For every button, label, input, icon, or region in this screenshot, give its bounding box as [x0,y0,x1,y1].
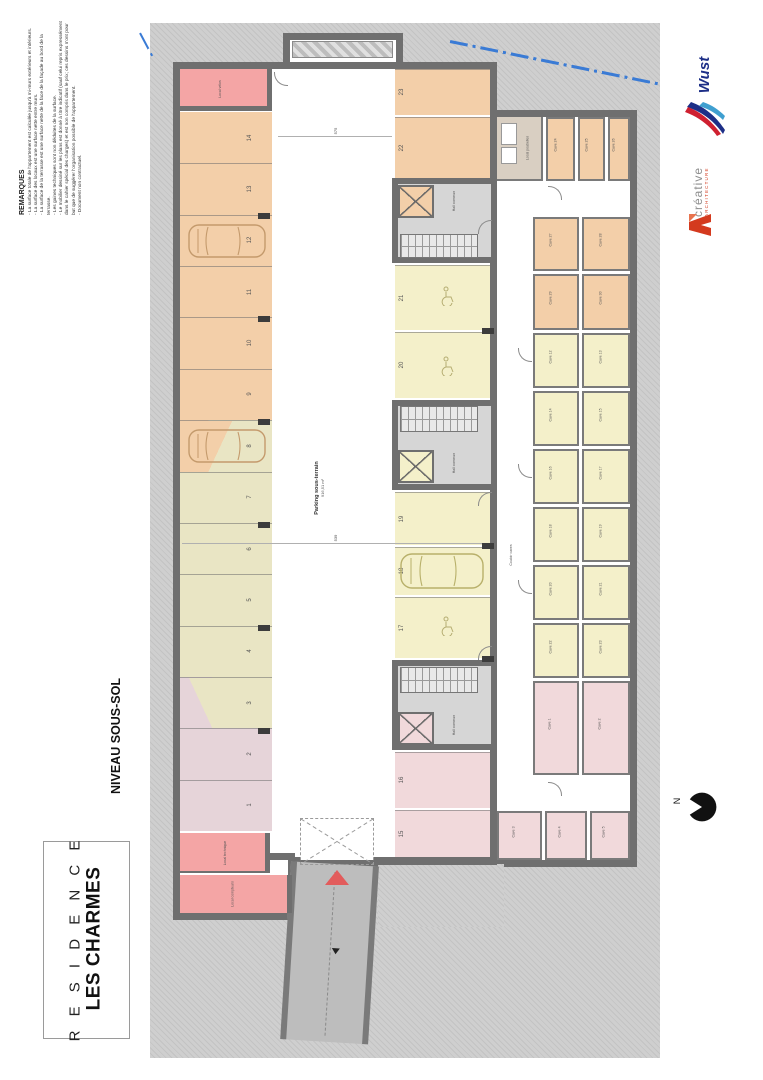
parking-space-number: 5 [244,594,256,606]
north-label: N [671,795,683,807]
ramp-entry-arrow-icon [325,870,349,885]
wheelchair-icon [437,286,455,306]
wheelchair-icon [437,356,455,376]
cave-room [533,217,579,271]
stall-tick [258,728,270,734]
parking-space [180,472,272,523]
cave-room [578,117,605,181]
crossed-zone-icon [301,819,373,864]
remarks-block: REMARQUES - La surface totale de l'appar… [19,20,114,215]
creative-architecture-logo-text: créative ARCHITECTURE [692,137,714,217]
residence-label: R E S I D E N C E [67,836,84,1042]
parking-space [395,752,490,808]
cave-room [582,507,630,562]
remarks-line: - Document non contractuel. [78,20,84,215]
remarks-title: REMARQUES [19,20,26,215]
parking-space [395,69,490,115]
car-icon [186,426,268,466]
cave-label: Cave 30 [599,291,603,304]
parking-space [180,780,272,831]
parking-space-number: 9 [244,388,256,400]
cave-room [533,507,579,562]
parking-space-number: 22 [396,142,408,154]
parking-space [180,369,272,420]
wust-logo-icon [683,102,725,136]
driveway-ramp [280,861,379,1044]
cave-label: Cave 14 [549,408,553,421]
elevator-shaft-icon [398,185,434,218]
parking-space-number: 3 [244,697,256,709]
car-icon [186,221,268,261]
stall-tick [258,625,270,631]
parking-space-number: 6 [244,543,256,555]
cave-room [582,565,630,620]
hall-label: Hall commun [449,179,459,223]
cave-label: Cave 21 [599,582,603,595]
remarks-line: - Le mobilier dessiné sur les plans est … [59,20,78,215]
parking-space [180,626,272,677]
elevator-shaft-icon [398,450,434,483]
cave-room [533,565,579,620]
stall-tick [258,522,270,528]
cave-label: Cave 27 [549,233,553,246]
parking-space-number: 2 [244,748,256,760]
parking-space-number: 23 [396,86,408,98]
cave-room [582,449,630,504]
elevator-shaft-icon [398,712,434,745]
remarks-line: - La surface de la terrasse est une surf… [40,20,52,215]
architecture-text: ARCHITECTURE [704,137,710,217]
cave-label: Cave 26 [612,138,616,151]
ramp-direction-arrow-icon [332,948,340,954]
corridor-label: Couloir caves [506,532,516,578]
cave-room [582,391,630,446]
parking-space-number: 20 [396,359,408,371]
cave-label: Cave 28 [599,233,603,246]
cave-label: Cave 18 [549,524,553,537]
parking-space-number: 11 [244,286,256,298]
parking-space-number: 19 [396,513,408,525]
cave-room [582,333,630,388]
parking-space-number: 17 [396,622,408,634]
room-label: Local vélos [213,69,227,109]
parking-space-number: 16 [396,774,408,786]
parking-space [180,317,272,368]
room-label: Local compteurs [226,867,240,922]
parking-space [180,677,272,728]
parking-space [180,112,272,163]
parking-space [180,574,272,625]
hall-label: Hall commun [449,441,459,485]
cave-room [533,623,579,678]
room-label: Local poubelles [522,121,534,176]
cave-label: Cave 20 [549,582,553,595]
plan-sheet: REMARQUES - La surface totale de l'appar… [0,0,763,1080]
cave-label: Cave 23 [599,640,603,653]
stall-tick [482,543,494,549]
cave-label: Cave 15 [599,408,603,421]
creative-text: créative [692,137,704,217]
cave-label: Cave 17 [599,466,603,479]
project-title: R E S I D E N C E LES CHARMES [44,841,129,1037]
parking-space-number: 10 [244,337,256,349]
stall-tick [258,316,270,322]
stall-tick [258,213,270,219]
cave-room [533,274,579,330]
cave-label: Cave 4 [558,826,562,837]
room-local-poubelles [497,117,543,181]
maneuver-zone [300,818,374,865]
staircase-icon [400,406,478,432]
wheelchair-icon [437,616,455,636]
cave-room [582,274,630,330]
cave-room [533,333,579,388]
parking-space-number: 21 [396,292,408,304]
cave-room [533,391,579,446]
cave-label: Cave 22 [549,640,553,653]
site-patch [378,864,504,927]
cave-label: Cave 29 [549,291,553,304]
dimension-value: 575 [330,124,340,138]
parking-space [180,728,272,779]
wall-segment [374,857,497,865]
hall-label: Hall commun [449,703,459,747]
cave-room [582,217,630,271]
parking-space [395,117,490,178]
car-icon [398,550,486,592]
parking-space [180,163,272,214]
north-arrow-icon [684,789,720,825]
creative-architecture-logo-icon [687,212,713,238]
cave-label: Cave 13 [599,350,603,363]
parking-area-label: Parking sous-terrain 916,51 m² [314,443,330,533]
cave-label: Cave 12 [549,350,553,363]
parking-space [180,523,272,574]
cave-room [590,811,630,860]
stall-tick [258,419,270,425]
parking-space-number: 1 [244,799,256,811]
cave-label: Cave 2 [598,718,602,729]
cave-label: Cave 16 [549,466,553,479]
fixture [501,123,517,145]
parking-area-value: 916,51 m² [320,443,325,533]
staircase-icon [400,234,478,258]
parking-space-number: 4 [244,645,256,657]
cave-label: Cave 24 [553,138,557,151]
cave-room [546,117,575,181]
cave-room [582,623,630,678]
parking-space-number: 7 [244,491,256,503]
parking-space [180,266,272,317]
cave-room [582,681,630,775]
parking-space [395,810,490,857]
cave-room [497,811,542,860]
cave-label: Cave 25 [584,138,588,151]
parking-space-number: 15 [396,828,408,840]
parking-space [395,492,490,545]
cave-label: Cave 3 [511,826,515,837]
staircase-icon [400,667,478,693]
level-title: NIVEAU SOUS-SOL [108,673,124,799]
parking-space-number: 14 [244,132,256,144]
cave-label: Cave 1 [548,718,552,729]
dimension-value: 539 [330,531,340,545]
entrance-grate [292,41,393,58]
stall-tick [482,328,494,334]
cave-label: Cave 5 [602,826,606,837]
wust-logo-text: Wust [695,54,713,96]
cave-room [533,449,579,504]
project-name: LES CHARMES [84,867,106,1011]
cave-room [533,681,579,775]
parking-space-number: 13 [244,183,256,195]
cave-label: Cave 19 [599,524,603,537]
cave-room [545,811,587,860]
fixture [501,147,517,164]
